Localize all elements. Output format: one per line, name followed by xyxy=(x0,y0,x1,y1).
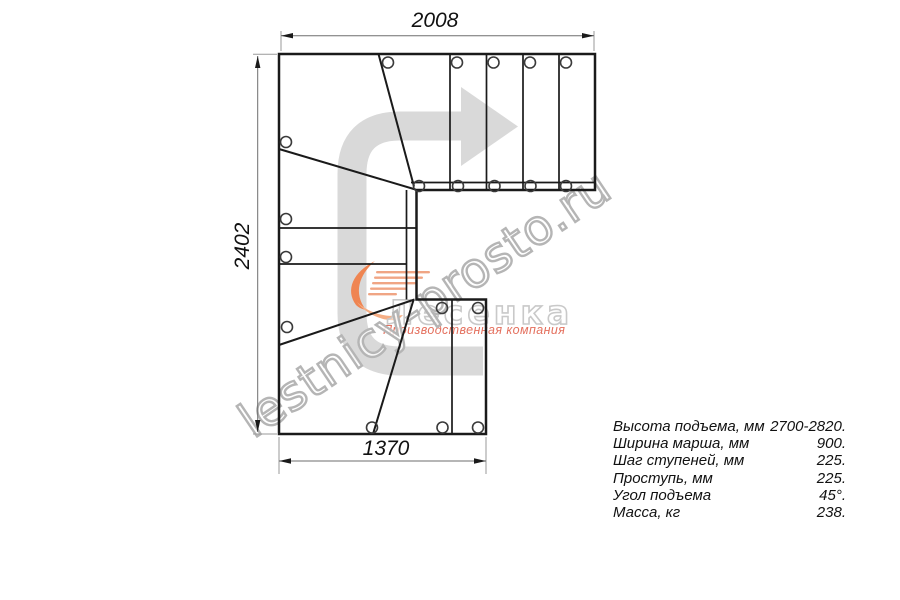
stair-outline xyxy=(279,54,595,434)
spec-row: Масса, кг 238. xyxy=(613,504,846,521)
spec-row: Проступь, мм 225. xyxy=(613,470,846,487)
tread-lines xyxy=(279,54,559,434)
spec-value: 225. xyxy=(817,470,846,487)
spec-value: 900. xyxy=(817,435,846,452)
dim-arrow-icon xyxy=(255,420,260,432)
spec-table: Высота подъема, мм 2700-2820. Ширина мар… xyxy=(613,418,846,521)
spec-label: Масса, кг xyxy=(613,504,680,521)
spec-value: 2700-2820. xyxy=(770,418,846,435)
dim-arrow-icon xyxy=(281,33,293,38)
dim-left-label: 2402 xyxy=(231,223,255,270)
dimension-top xyxy=(281,31,594,51)
spec-value: 225. xyxy=(817,452,846,469)
screw-holes xyxy=(281,57,572,433)
spec-label: Угол подъема xyxy=(613,487,711,504)
dim-arrow-icon xyxy=(582,33,594,38)
dim-arrow-icon xyxy=(279,458,291,463)
spec-row: Шаг ступеней, мм 225. xyxy=(613,452,846,469)
stringer-lines xyxy=(407,183,596,300)
spec-row: Угол подъема 45°. xyxy=(613,487,846,504)
dim-arrow-icon xyxy=(474,458,486,463)
spec-label: Проступь, мм xyxy=(613,470,713,487)
dim-arrow-icon xyxy=(255,56,260,68)
dim-top-label: 2008 xyxy=(412,9,459,33)
dim-bottom-label: 1370 xyxy=(363,437,410,461)
spec-label: Шаг ступеней, мм xyxy=(613,452,744,469)
spec-label: Ширина марша, мм xyxy=(613,435,749,452)
staircase-plan-page: Лесенка Производственная компания lestni… xyxy=(0,0,900,600)
spec-row: Высота подъема, мм 2700-2820. xyxy=(613,418,846,435)
spec-value: 45°. xyxy=(819,487,846,504)
winder-lines xyxy=(279,54,416,434)
spec-row: Ширина марша, мм 900. xyxy=(613,435,846,452)
dimension-left xyxy=(253,54,277,434)
spec-label: Высота подъема, мм xyxy=(613,418,765,435)
spec-value: 238. xyxy=(817,504,846,521)
